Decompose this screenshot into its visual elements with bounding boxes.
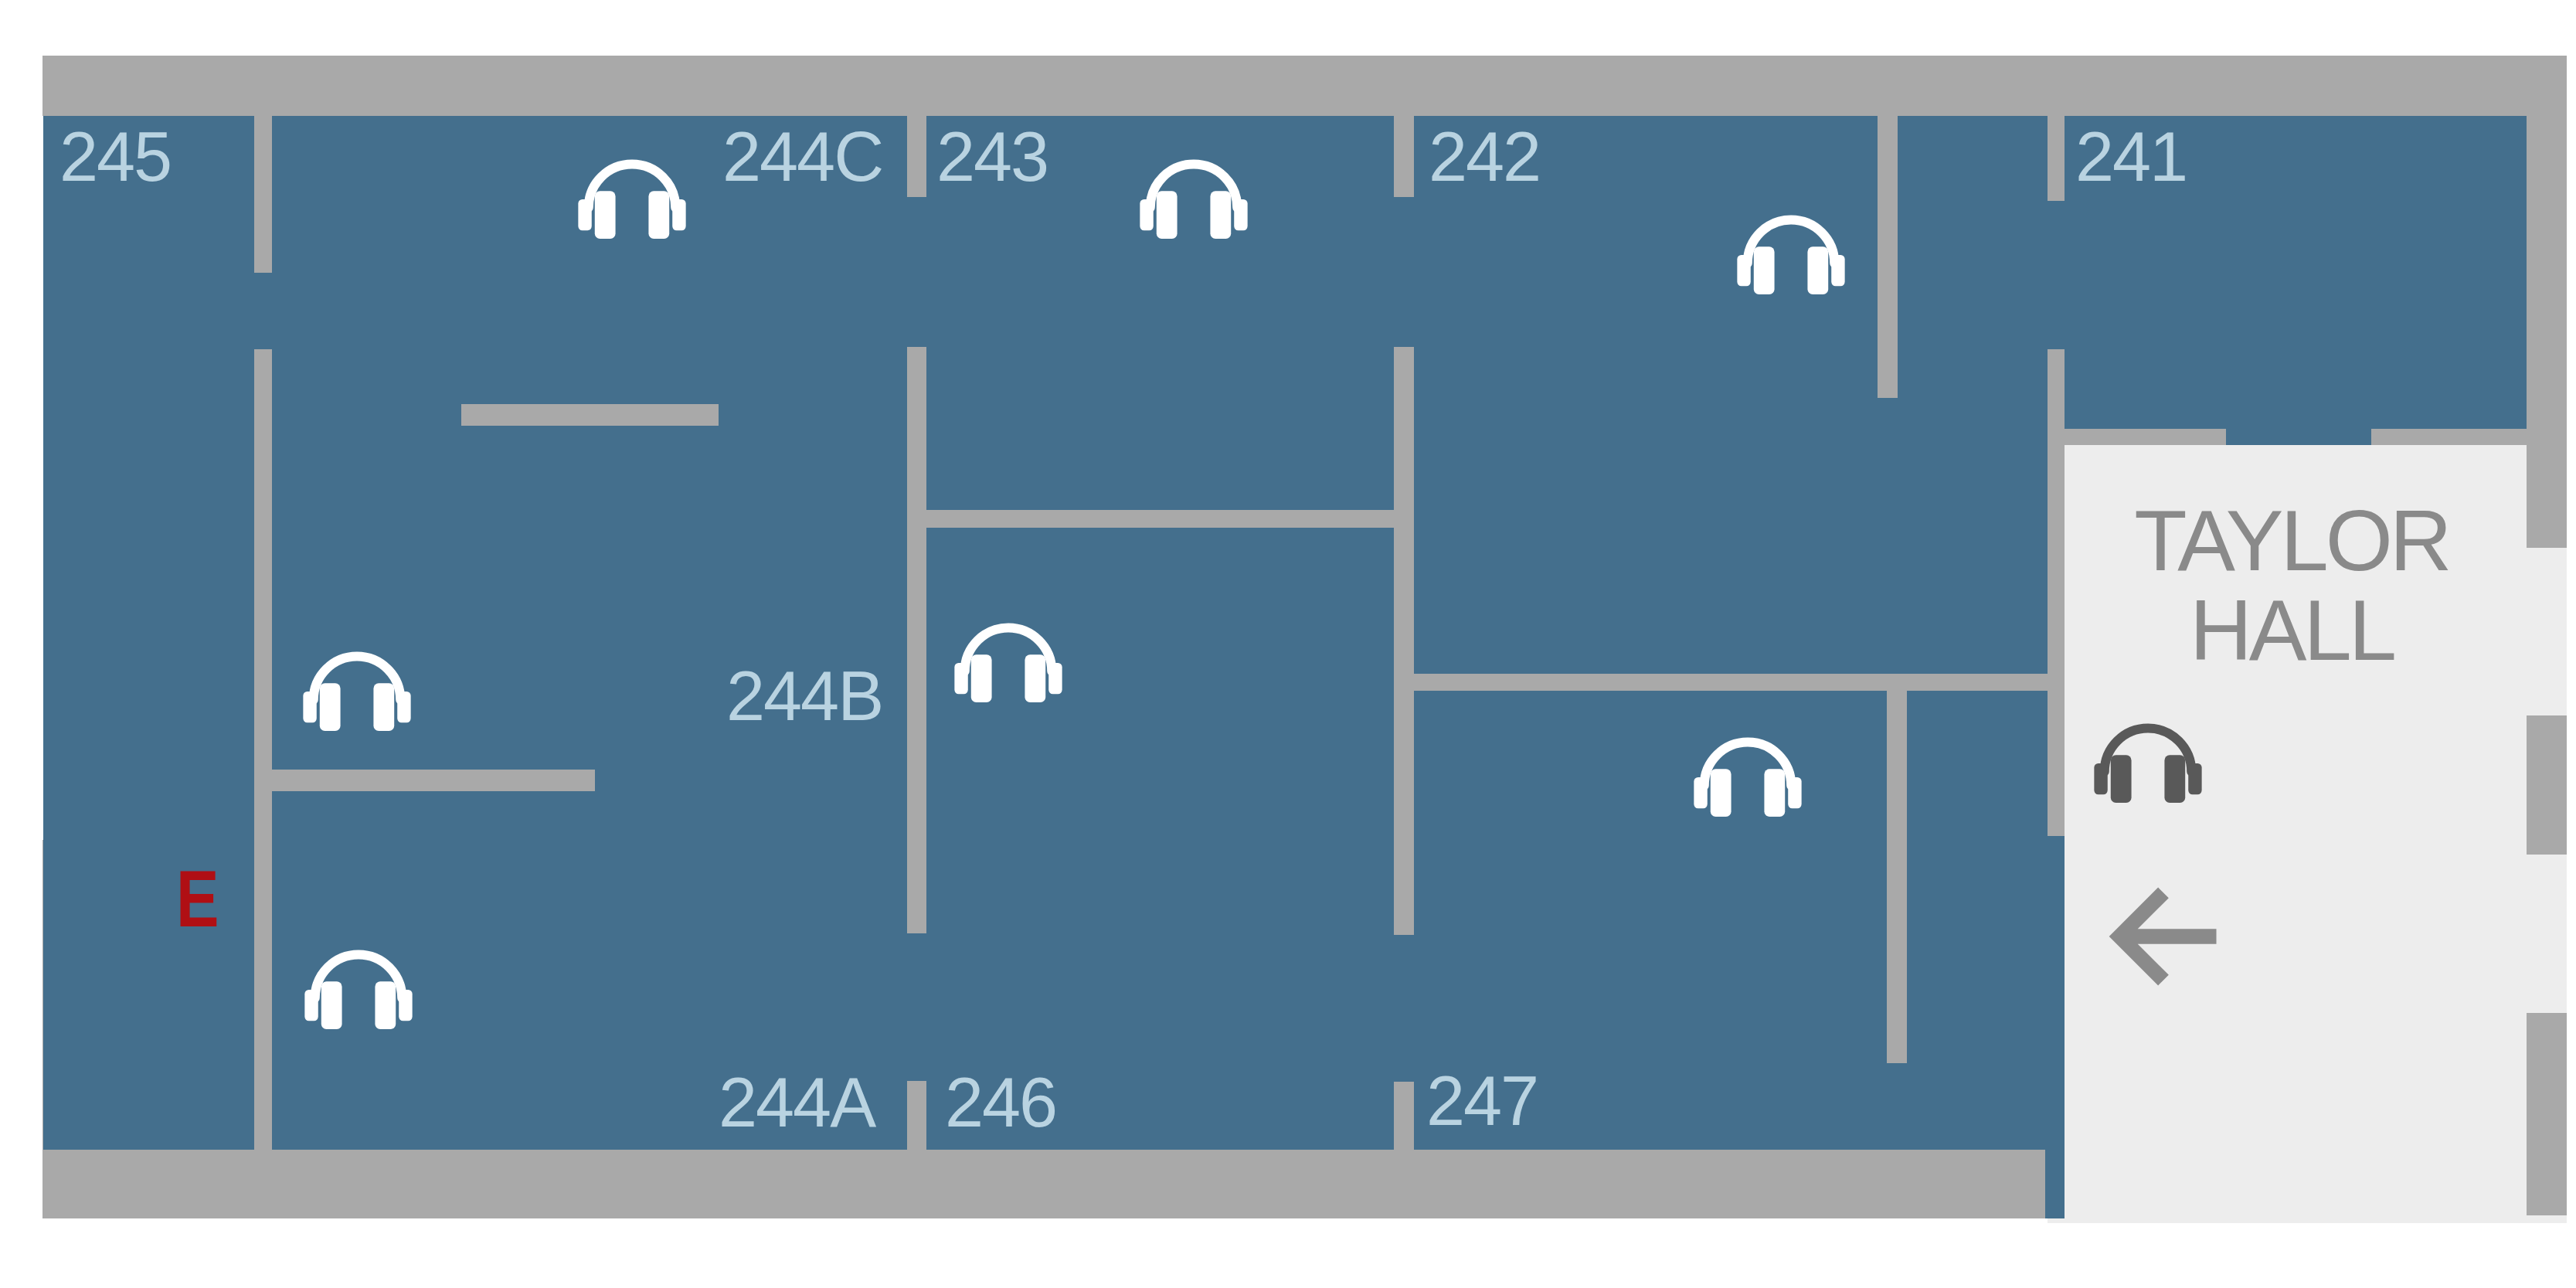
wall [2048,349,2065,836]
room-label-245: 245 [59,122,171,192]
wall [2527,56,2567,548]
room-label-244B: 244B [726,661,882,731]
wall [1394,347,1414,935]
wall [2527,1013,2567,1215]
wall [461,404,719,426]
hall-name-line1: TAYLOR [2086,496,2497,586]
wall [2065,429,2226,445]
wall [254,349,272,1165]
wall [907,1081,926,1165]
headphones-icon [1136,141,1252,245]
headphones-icon [301,932,416,1035]
room-label-243: 243 [936,122,1048,192]
wall [1887,688,1907,1063]
headphones-icon [1690,719,1806,823]
room-label-247: 247 [1426,1066,1538,1136]
wall [1394,1082,1414,1159]
left-arrow-icon [2105,882,2221,991]
hall-name-line2: HALL [2086,586,2497,675]
wall [907,347,926,933]
wall [2527,715,2567,855]
wall [907,116,926,197]
headphones-icon [299,634,415,737]
hall-name: TAYLOR HALL [2086,496,2497,676]
wall [42,1150,2045,1218]
floor-plan: 245244C243242241244B244A246247E TAYLOR H… [0,0,2576,1288]
room-label-242: 242 [1429,122,1540,192]
headphones-icon [1733,197,1849,301]
wall [270,770,595,791]
headphones-icon [950,605,1066,709]
wall [1394,116,1414,197]
headphones-icon [574,141,690,245]
wall [1878,116,1898,398]
room-label-246: 246 [945,1068,1056,1137]
wall [42,56,2567,116]
wall [2371,429,2527,445]
wall [254,116,272,273]
room-label-244A: 244A [719,1068,875,1137]
room-label-244C: 244C [722,122,882,192]
elevator-label: E [176,853,219,945]
wall [2048,116,2065,201]
wall [1404,674,2048,691]
wall [916,510,1414,528]
headphones-icon [2090,705,2206,809]
room-label-241: 241 [2075,122,2187,192]
